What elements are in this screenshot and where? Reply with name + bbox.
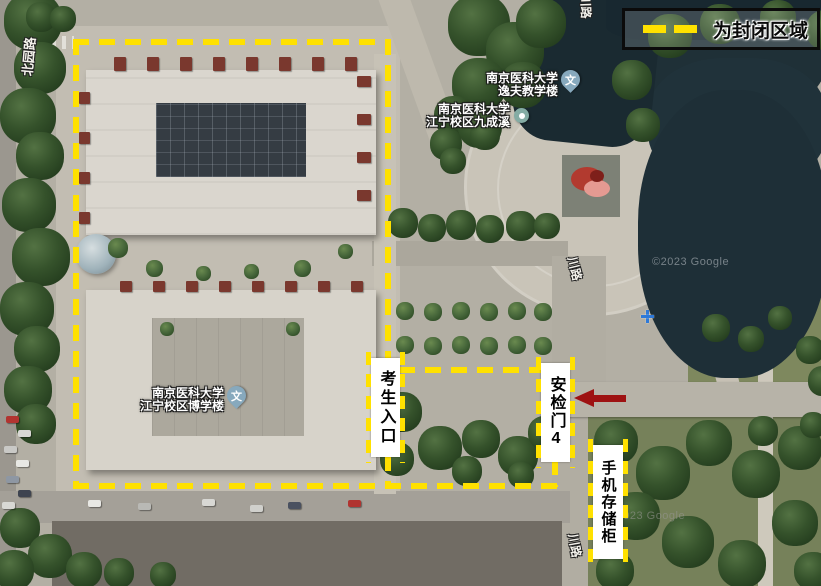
parked-car <box>16 460 29 467</box>
arrow-shaft <box>593 395 626 402</box>
boundary-top <box>73 39 391 45</box>
poi-label-yifu-building[interactable]: 南京医科大学逸夫教学楼 <box>420 72 558 97</box>
boundary-left <box>73 39 79 489</box>
gate-arrow <box>574 389 628 407</box>
parked-car <box>348 500 361 507</box>
parked-car <box>2 502 15 509</box>
entrance-label-box: 考生入口 <box>371 358 400 457</box>
parked-car <box>4 446 17 453</box>
satellite-map: ©2023 Google ©2023 Google 北园路 川路 川路 川路 南… <box>0 0 821 586</box>
google-watermark: ©2023 Google <box>652 256 729 268</box>
parked-car <box>6 416 19 423</box>
arrow-head-icon <box>574 389 594 407</box>
legend-dash-sample <box>643 25 697 33</box>
parked-car <box>288 502 301 509</box>
legend-box: 为封闭区域 <box>622 8 820 50</box>
road-label-chuan-top: 川路 <box>576 0 595 37</box>
boundary-corridor-top <box>399 367 542 373</box>
place-dot-jiuchengxi[interactable] <box>514 108 529 123</box>
pin-glyph: 文 <box>227 386 246 405</box>
poi-label-jiuchengxi[interactable]: 南京医科大学江宁校区九成溪 <box>400 103 510 128</box>
parked-car <box>202 499 215 506</box>
parked-car <box>88 500 101 507</box>
phone-locker-label-box: 手机存储柜 <box>593 445 623 559</box>
parked-car <box>138 503 151 510</box>
pin-glyph: 文 <box>561 70 580 89</box>
map-plus-marker[interactable] <box>641 310 654 323</box>
boundary-corridor-right <box>552 459 558 487</box>
poi-label-boxue-building[interactable]: 南京医科大学江宁校区博学楼 <box>130 387 224 412</box>
parked-car <box>18 490 31 497</box>
education-pin-yifu[interactable]: 文 <box>557 66 584 93</box>
security-gate-label-box: 安检门4 <box>541 363 570 462</box>
parked-car <box>6 476 19 483</box>
boundary-bottom <box>73 483 558 489</box>
education-pin-boxue[interactable]: 文 <box>223 382 250 409</box>
parked-car <box>250 505 263 512</box>
parked-car <box>18 430 31 437</box>
legend-label: 为封闭区域 <box>713 16 808 43</box>
